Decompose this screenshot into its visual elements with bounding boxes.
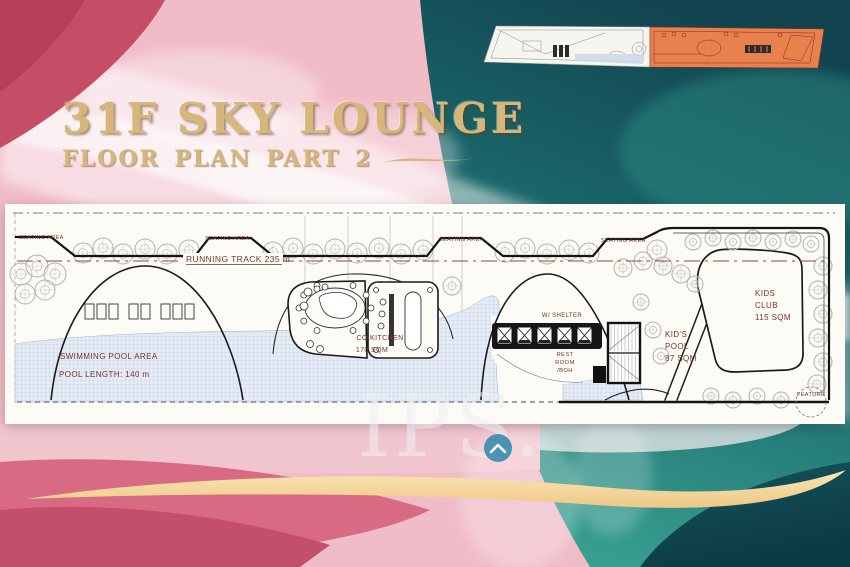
kids-pool-line3: 87 SQM xyxy=(665,354,697,363)
shelter-label: W/ SHELTER xyxy=(542,313,582,319)
shelter-block xyxy=(492,323,602,349)
kids-club-outline xyxy=(697,249,803,372)
restroom-line1: REST xyxy=(556,352,573,358)
running-track-label: RUNNING TRACK 235 m xyxy=(186,254,290,264)
seating-area-label-4: SEATING AREA xyxy=(601,238,646,244)
kids-club-line3: 115 SQM xyxy=(755,313,791,322)
kids-club-line1: KIDS xyxy=(755,289,775,298)
restroom-line3: /BOH xyxy=(557,368,573,374)
pool-label-line2: POOL LENGTH: 140 m xyxy=(59,370,150,379)
seating-area-label-3: SEATING AREA xyxy=(439,237,484,243)
page-title: 31F SKY LOUNGE xyxy=(62,96,526,142)
slide-stage: 31F SKY LOUNGE FLOOR PLAN PART 2 xyxy=(0,0,850,567)
kids-pool-line1: KID'S xyxy=(665,330,687,339)
kids-pool-line2: POOL xyxy=(665,342,689,351)
seating-area-label-2: SEATING AREA xyxy=(205,236,250,242)
kitchen-label-line1: CO KITCHEN xyxy=(356,335,403,342)
seating-area-label-1: SEATING AREA xyxy=(19,235,64,241)
page-subtitle: FLOOR PLAN PART 2 xyxy=(62,146,526,172)
overview-minimap xyxy=(483,24,825,70)
kids-club-line2: CLUB xyxy=(755,301,778,310)
floor-plan-panel: RUNNING TRACK 235 m xyxy=(5,204,845,424)
restroom-line2: ROOM xyxy=(555,360,575,366)
gold-swoosh xyxy=(382,152,482,166)
pool-loungers xyxy=(85,304,194,319)
pool-label-line1: SWIMMING POOL AREA xyxy=(60,352,158,361)
title-block: 31F SKY LOUNGE FLOOR PLAN PART 2 xyxy=(62,96,526,172)
ips-logo-circle xyxy=(483,433,513,463)
subtitle-text: FLOOR PLAN PART 2 xyxy=(62,146,372,172)
kitchen-label-line2: 170 SQM xyxy=(356,347,388,354)
feature-label: FEATURE xyxy=(797,392,825,398)
